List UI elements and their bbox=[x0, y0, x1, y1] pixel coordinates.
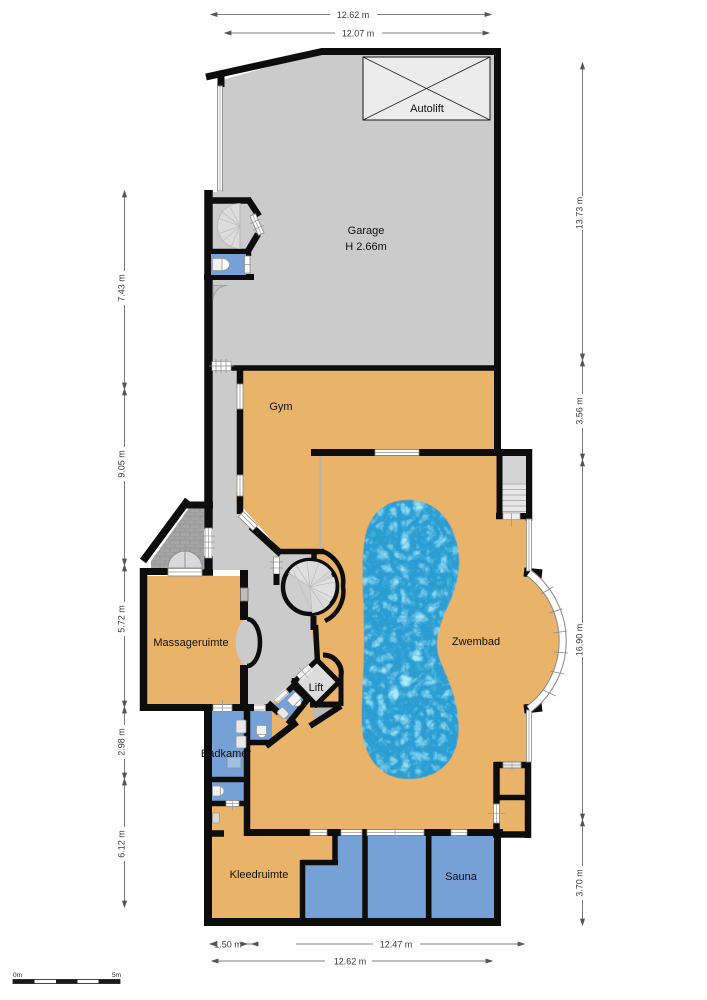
svg-text:Gym: Gym bbox=[269, 401, 292, 413]
svg-text:Badkamer: Badkamer bbox=[201, 748, 251, 760]
svg-text:16.90 m: 16.90 m bbox=[575, 624, 585, 657]
svg-text:Autolift: Autolift bbox=[410, 103, 444, 115]
svg-text:9.05 m: 9.05 m bbox=[117, 450, 127, 478]
svg-text:5.72 m: 5.72 m bbox=[117, 605, 127, 633]
svg-text:Garage: Garage bbox=[348, 225, 385, 237]
svg-text:13.73 m: 13.73 m bbox=[575, 197, 585, 230]
svg-text:12.62 m: 12.62 m bbox=[334, 957, 367, 967]
svg-text:Sauna: Sauna bbox=[445, 871, 478, 883]
svg-text:12.47 m: 12.47 m bbox=[380, 940, 413, 950]
svg-text:5m: 5m bbox=[112, 972, 121, 979]
svg-text:7.43 m: 7.43 m bbox=[117, 274, 127, 302]
svg-text:H 2.66m: H 2.66m bbox=[345, 241, 387, 253]
svg-text:Lift: Lift bbox=[309, 682, 324, 694]
svg-text:3.56 m: 3.56 m bbox=[575, 397, 585, 425]
svg-text:Massageruimte: Massageruimte bbox=[153, 637, 228, 649]
svg-text:3.70 m: 3.70 m bbox=[575, 869, 585, 897]
svg-text:1.50 m: 1.50 m bbox=[214, 940, 242, 950]
svg-text:12.62 m: 12.62 m bbox=[337, 10, 370, 20]
svg-text:2.98 m: 2.98 m bbox=[117, 728, 127, 756]
svg-text:0m: 0m bbox=[13, 972, 22, 979]
svg-text:12.07 m: 12.07 m bbox=[342, 29, 375, 39]
svg-text:6.12 m: 6.12 m bbox=[117, 830, 127, 858]
svg-text:Zwembad: Zwembad bbox=[452, 636, 500, 648]
svg-text:Kleedruimte: Kleedruimte bbox=[230, 869, 289, 881]
